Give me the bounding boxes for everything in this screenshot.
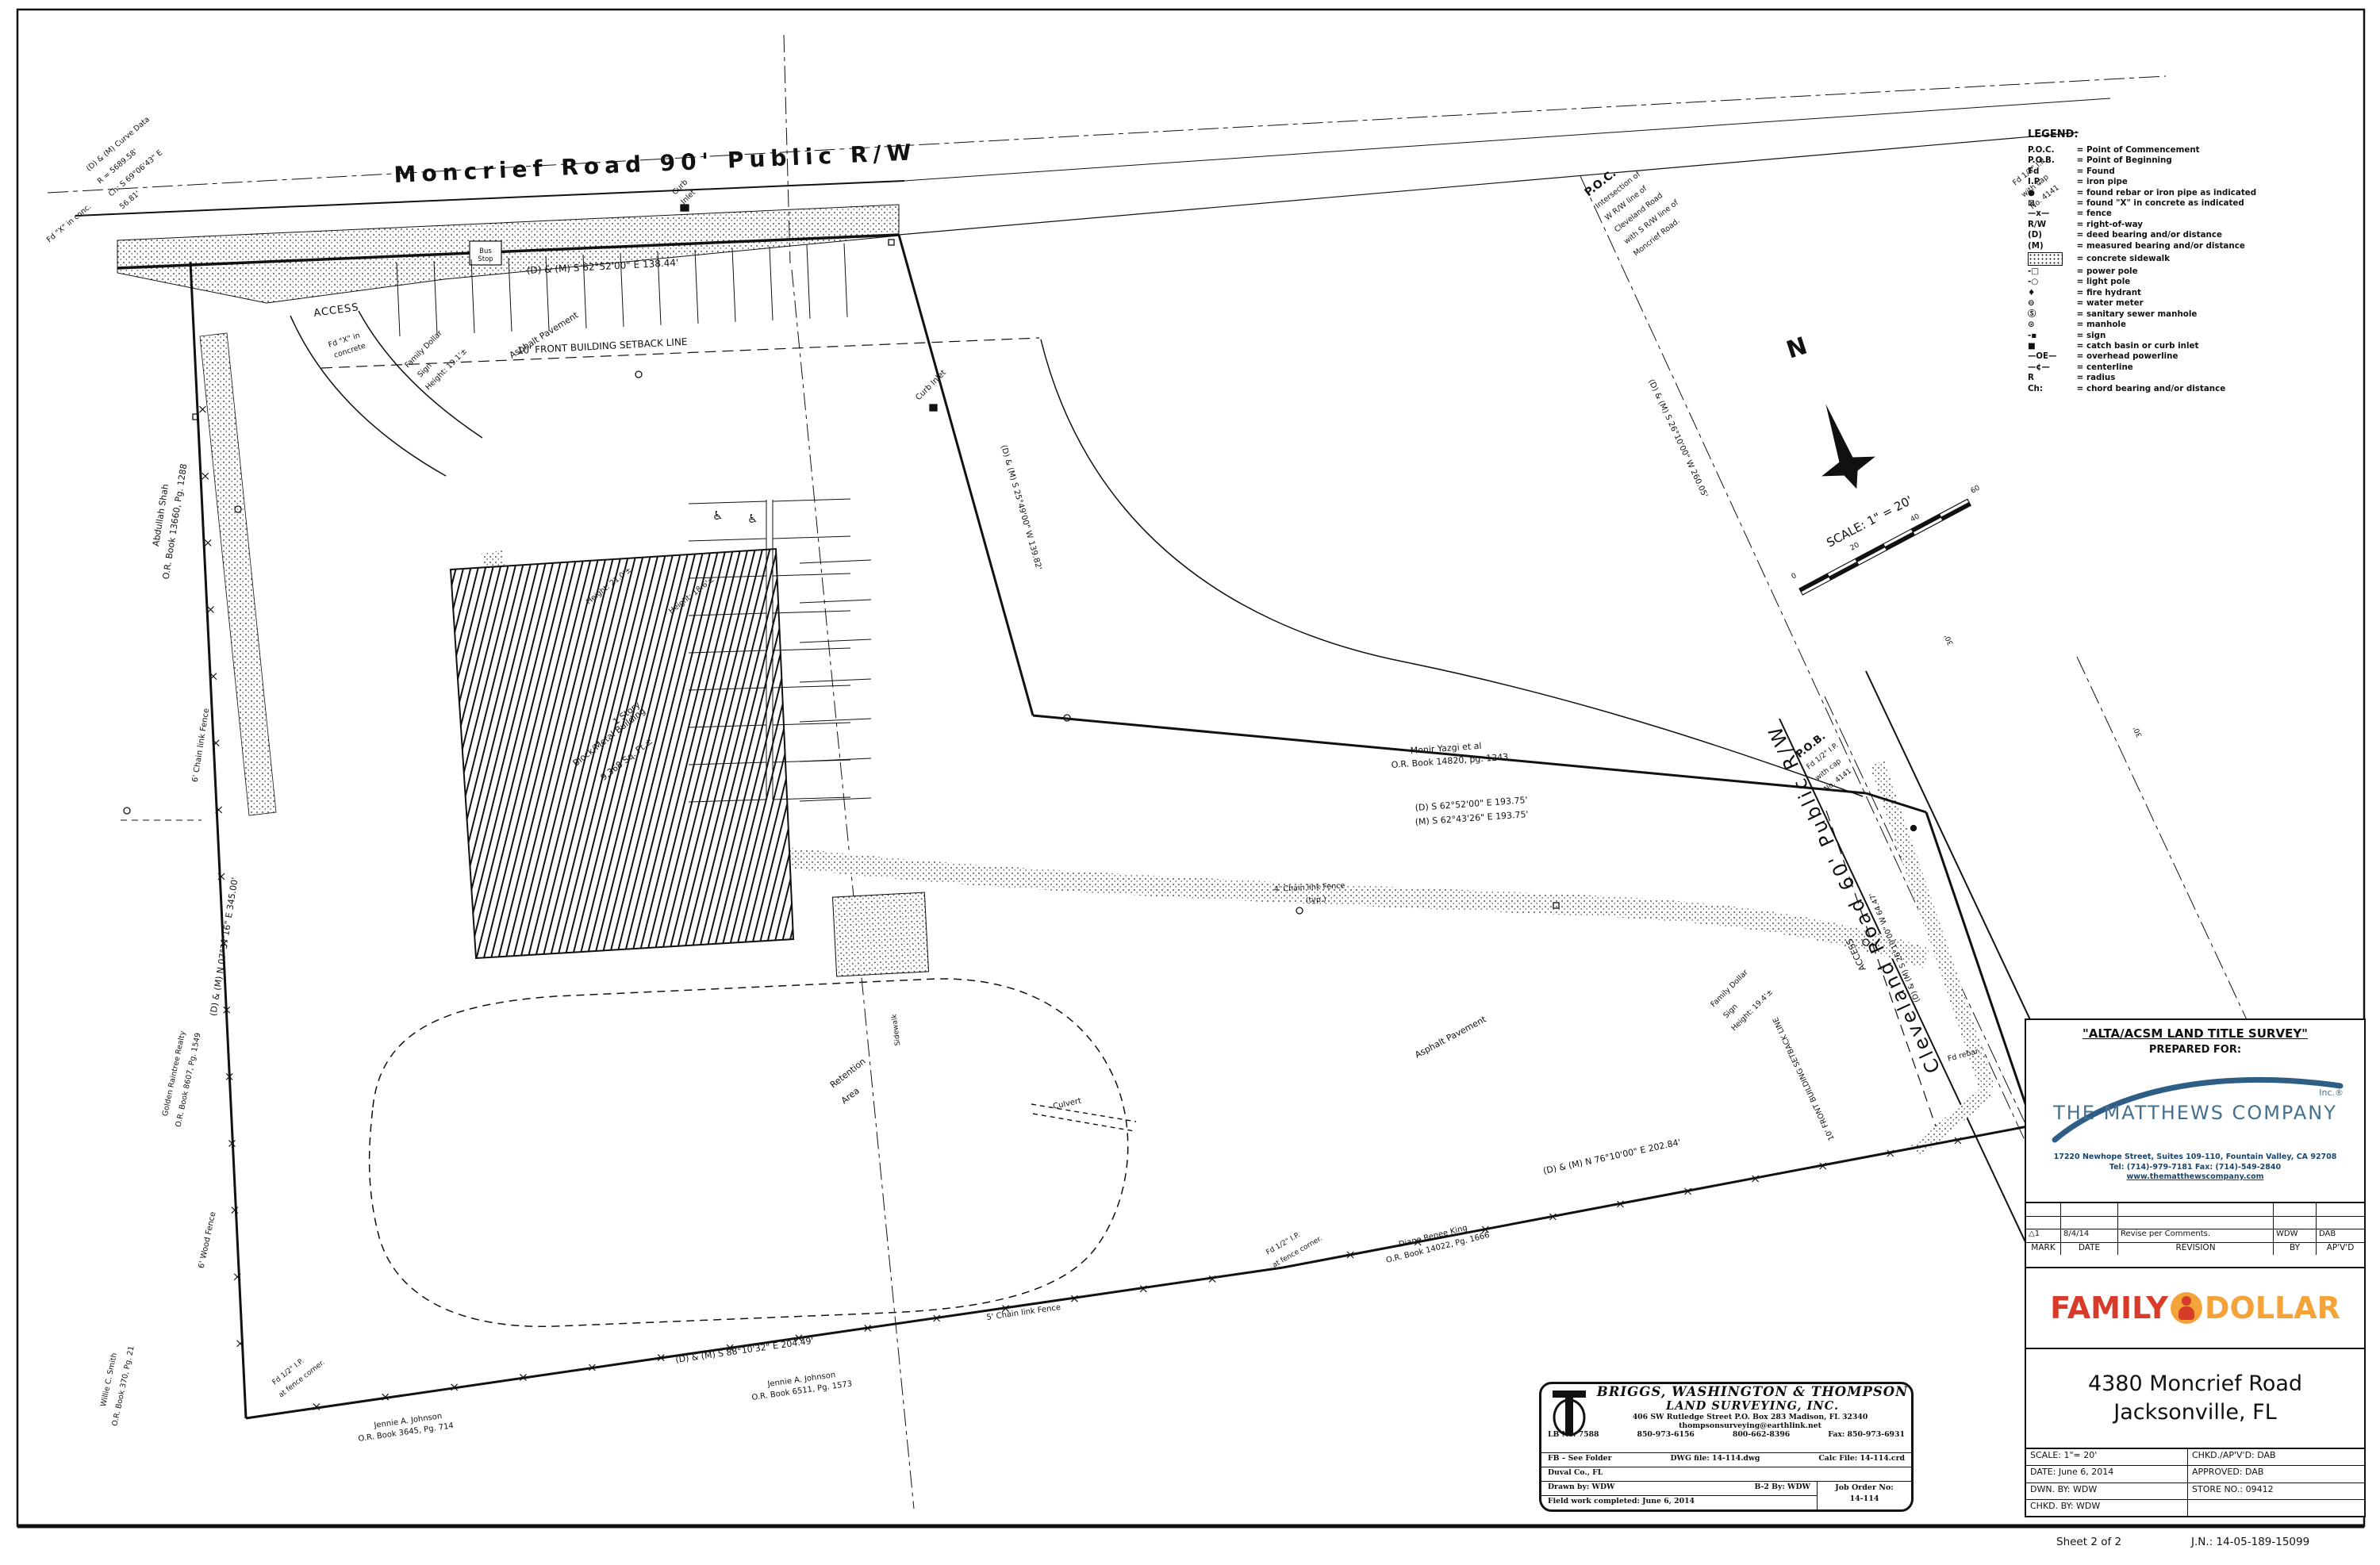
info-scale: SCALE: 1"= 20' [2026, 1449, 2188, 1465]
revision-cell [2317, 1216, 2364, 1229]
legend-description: measured bearing and/or distance [2086, 241, 2364, 251]
legend-items: P.O.C.=Point of CommencementP.O.B.=Point… [2028, 145, 2364, 394]
legend-item: R=radius [2028, 373, 2364, 383]
revision-cell: WDW [2274, 1229, 2317, 1242]
legend-equals: = [2074, 177, 2086, 187]
legend-symbol: ⊙ [2028, 320, 2074, 330]
legend-description: manhole [2086, 320, 2364, 330]
legend-symbol: Fd [2028, 167, 2074, 177]
prepared-for-block: "ALTA/ACSM LAND TITLE SURVEY" PREPARED F… [2025, 1018, 2366, 1203]
matthews-logo: Inc.® THE MATTHEWS COMPANY [2026, 1061, 2364, 1153]
survey-label: ACCESS [313, 301, 359, 320]
legend-item: -□=power pole [2028, 267, 2364, 277]
survey-title: "ALTA/ACSM LAND TITLE SURVEY" [2026, 1026, 2364, 1041]
legend-symbol: —¢— [2028, 362, 2074, 373]
legend-symbol: -▪ [2028, 331, 2074, 341]
legend-symbol: ● [2028, 188, 2074, 198]
legend-symbol: —OE— [2028, 351, 2074, 362]
legend-equals: = [2074, 209, 2086, 219]
legend-equals: = [2074, 373, 2086, 383]
family-dollar-dollar: DOLLAR [2205, 1291, 2340, 1325]
legend-description: concrete sidewalk [2086, 254, 2364, 264]
legend-item: ■=catch basin or curb inlet [2028, 341, 2364, 351]
legend-symbol: (D) [2028, 230, 2074, 240]
survey-label: (D) & (M) S 25°49'00" W 139.82' [999, 444, 1043, 571]
survey-label: 0 [1791, 572, 1798, 581]
site-address-line1: 4380 Moncrief Road [2088, 1370, 2302, 1398]
legend-equals: = [2074, 241, 2086, 251]
legend-item: ⊖=water meter [2028, 298, 2364, 309]
survey-label: Sign [1722, 1003, 1739, 1020]
sheet-number: Sheet 2 of 2 [2056, 1536, 2121, 1548]
revision-row [2026, 1203, 2364, 1216]
revision-rows: △18/4/14Revise per Comments.WDWDAB [2026, 1203, 2364, 1242]
revision-cell [2317, 1203, 2364, 1216]
surveyor-dwg: DWG file: 14-114.dwg [1670, 1454, 1760, 1466]
legend-item: ⊙=manhole [2028, 320, 2364, 330]
surveyor-calc: Calc File: 14-114.crd [1818, 1454, 1905, 1466]
revision-cell [2061, 1216, 2118, 1229]
survey-label: (D) & (M) S 26°10'00" W 260.05' [1646, 378, 1709, 500]
legend-symbol: Ch: [2028, 384, 2074, 394]
legend-symbol: R [2028, 373, 2074, 383]
legend-item: ⊠=found "X" in concrete as indicated [2028, 198, 2364, 209]
legend-equals: = [2074, 167, 2086, 177]
legend-equals: = [2074, 320, 2086, 330]
legend-description: Point of Beginning [2086, 155, 2364, 166]
matthews-name: THE MATTHEWS COMPANY [2026, 1102, 2364, 1124]
survey-label: Bus [479, 247, 492, 255]
legend-equals: = [2074, 288, 2086, 298]
info-grid: SCALE: 1"= 20' CHKD./AP'V'D: DAB DATE: J… [2025, 1448, 2366, 1517]
legend-equals: = [2074, 267, 2086, 277]
legend-description: deed bearing and/or distance [2086, 230, 2364, 240]
revision-cell [2026, 1216, 2061, 1229]
legend-item: P.O.C.=Point of Commencement [2028, 145, 2364, 155]
legend-description: fence [2086, 209, 2364, 219]
survey-label: 30' [1944, 633, 1956, 646]
survey-drawing: Moncrief Road 90' Public R/WCurbInletBus… [0, 0, 2380, 1565]
info-store-no: STORE NO.: 09412 [2188, 1483, 2364, 1499]
legend-description: sanitary sewer manhole [2086, 309, 2364, 320]
revision-cell [2118, 1216, 2274, 1229]
survey-label: Culvert [1052, 1097, 1082, 1111]
survey-label: (D) & (M) N 76°10'00" E 202.84' [1542, 1137, 1682, 1176]
survey-label: 60 [1970, 484, 1982, 495]
revision-header-apvd: AP'V'D [2317, 1242, 2364, 1256]
legend-item: Ch:=chord bearing and/or distance [2028, 384, 2364, 394]
legend-description: radius [2086, 373, 2364, 383]
legend-description: Point of Commencement [2086, 145, 2364, 155]
info-date: DATE: June 6, 2014 [2026, 1465, 2188, 1482]
legend-description: water meter [2086, 298, 2364, 309]
survey-label: Curb Inlet [914, 369, 948, 403]
revision-header-by: BY [2274, 1242, 2317, 1256]
legend-item: R/W=right-of-way [2028, 220, 2364, 230]
legend-equals: = [2074, 298, 2086, 309]
info-approved: APPROVED: DAB [2188, 1465, 2364, 1482]
surveyor-email: thompsonsurveying@earthlink.net [1589, 1421, 1911, 1430]
legend-symbol: ♦ [2028, 288, 2074, 298]
legend-item: (D)=deed bearing and/or distance [2028, 230, 2364, 240]
surveyor-address: 406 SW Rutledge Street P.O. Box 283 Madi… [1589, 1413, 1911, 1421]
survey-label: Stop [478, 255, 493, 263]
revision-cell: DAB [2317, 1229, 2364, 1242]
legend-symbol: P.O.B. [2028, 155, 2074, 166]
survey-label: Area [839, 1086, 862, 1107]
prepared-for-label: PREPARED FOR: [2026, 1044, 2364, 1056]
revision-header-revision: REVISION [2118, 1242, 2274, 1256]
legend-equals: = [2074, 351, 2086, 362]
legend-symbol: —x— [2028, 209, 2074, 219]
legend-equals: = [2074, 277, 2086, 287]
legend-item: Fd=Found [2028, 167, 2364, 177]
legend-equals: = [2074, 188, 2086, 198]
north-arrow [1798, 394, 1883, 499]
survey-label: Family Dollar [1709, 969, 1749, 1009]
legend-equals: = [2074, 254, 2086, 264]
survey-label: Retention [828, 1056, 868, 1090]
revision-cell [2061, 1203, 2118, 1216]
surveyor-fb: FB – See Folder [1548, 1454, 1612, 1466]
legend-item: -▪=sign [2028, 331, 2364, 341]
survey-label: (D) & (M) S 88°10'32" E 204.49' [675, 1336, 815, 1365]
survey-sheet: Moncrief Road 90' Public R/WCurbInletBus… [0, 0, 2380, 1565]
legend-description: fire hydrant [2086, 288, 2364, 298]
survey-label: N [1783, 332, 1811, 365]
revision-cell [2274, 1203, 2317, 1216]
info-chkd-apvd: CHKD./AP'V'D: DAB [2188, 1449, 2364, 1465]
legend-equals: = [2074, 309, 2086, 320]
legend-symbol: R/W [2028, 220, 2074, 230]
revision-row [2026, 1216, 2364, 1229]
revision-cell: △1 [2026, 1229, 2061, 1242]
legend-description: found "X" in concrete as indicated [2086, 198, 2364, 209]
survey-label: Asphalt Pavement [1413, 1014, 1488, 1061]
revision-row: △18/4/14Revise per Comments.WDWDAB [2026, 1229, 2364, 1242]
surveyor-b2-by: B-2 By: WDW [1755, 1483, 1810, 1494]
legend-item: P.O.B.=Point of Beginning [2028, 155, 2364, 166]
legend-item: =concrete sidewalk [2028, 251, 2364, 267]
site-interior [121, 311, 1936, 1326]
family-dollar-family: FAMILY [2050, 1291, 2168, 1325]
legend-item: -○=light pole [2028, 277, 2364, 287]
legend-item: Ⓢ=sanitary sewer manhole [2028, 309, 2364, 320]
legend-item: (M)=measured bearing and/or distance [2028, 241, 2364, 251]
legend-symbol: (M) [2028, 241, 2074, 251]
revision-header-date: DATE [2061, 1242, 2118, 1256]
revision-cell [2274, 1216, 2317, 1229]
revision-cell [2118, 1203, 2274, 1216]
revision-block: △18/4/14Revise per Comments.WDWDAB MARK … [2025, 1202, 2366, 1268]
legend-symbol: I.P. [2028, 177, 2074, 187]
legend-symbol: ⊖ [2028, 298, 2074, 309]
legend-description: right-of-way [2086, 220, 2364, 230]
survey-label: 30' [2132, 725, 2144, 738]
site-address-block: 4380 Moncrief Road Jacksonville, FL [2025, 1348, 2366, 1449]
legend-item: —OE—=overhead powerline [2028, 351, 2364, 362]
utility-symbols [124, 205, 1917, 946]
surveyor-county: Duval Co., FL [1548, 1468, 1603, 1480]
survey-label: 20 [1849, 541, 1861, 552]
surveyor-job-label: Job Order No: [1818, 1483, 1911, 1494]
site-address-line2: Jacksonville, FL [2113, 1398, 2277, 1427]
legend: LEGEND: P.O.C.=Point of CommencementP.O.… [2028, 128, 2364, 394]
legend-equals: = [2074, 331, 2086, 341]
revision-cell: 8/4/14 [2061, 1229, 2118, 1242]
surveyor-logo-icon [1548, 1389, 1591, 1440]
survey-label: Family Dollar [403, 329, 443, 370]
legend-description: sign [2086, 331, 2364, 341]
legend-equals: = [2074, 384, 2086, 394]
survey-label: 10' FRONT BUILDING SETBACK LINE [1772, 1016, 1837, 1142]
surveyor-phone1: 850-973-6156 [1637, 1430, 1694, 1439]
surveyor-fieldwork: Field work completed: June 6, 2014 [1548, 1497, 1695, 1509]
legend-item: —¢—=centerline [2028, 362, 2364, 373]
legend-symbol: ■ [2028, 341, 2074, 351]
survey-label: ♿ [712, 508, 723, 523]
surveyor-job-no: 14-114 [1818, 1494, 1911, 1505]
info-chkd-by: CHKD. BY: WDW [2026, 1499, 2188, 1516]
generated-linework [199, 244, 1961, 1410]
survey-label: Fd "X" in conc. [45, 202, 94, 244]
legend-description: chord bearing and/or distance [2086, 384, 2364, 394]
legend-sidewalk-swatch [2028, 252, 2063, 266]
legend-symbol: -□ [2028, 267, 2074, 277]
surveyor-drawn-by: Drawn by: WDW [1548, 1483, 1615, 1494]
matthews-inc: Inc.® [2319, 1087, 2344, 1098]
legend-item: I.P.=iron pipe [2028, 177, 2364, 187]
legend-description: iron pipe [2086, 177, 2364, 187]
legend-item: —x—=fence [2028, 209, 2364, 219]
matthews-website: www.thematthewscompany.com [2026, 1172, 2364, 1183]
surveyor-block: BRIGGS, WASHINGTON & THOMPSON LAND SURVE… [1539, 1382, 1914, 1512]
survey-label: Sidewalk [891, 1013, 903, 1046]
revision-header: MARK DATE REVISION BY AP'V'D [2026, 1242, 2364, 1256]
legend-equals: = [2074, 198, 2086, 209]
revision-cell [2026, 1203, 2061, 1216]
survey-label: 6' Wood Fence [198, 1211, 218, 1269]
legend-title: LEGEND: [2028, 128, 2364, 140]
legend-description: catch basin or curb inlet [2086, 341, 2364, 351]
survey-label: (D) & (M) N 07°37'16" E 345.00' [208, 876, 240, 1017]
info-dwn-by: DWN. BY: WDW [2026, 1483, 2188, 1499]
family-dollar-logo: FAMILY DOLLAR [2025, 1267, 2366, 1349]
survey-label: 40 [1910, 512, 1921, 524]
legend-symbol: ⊠ [2028, 198, 2074, 209]
legend-description: light pole [2086, 277, 2364, 287]
surveyor-phone2: 800-662-8396 [1733, 1430, 1790, 1439]
survey-label: (typ.) [1306, 896, 1326, 905]
legend-description: centerline [2086, 362, 2364, 373]
job-number: J.N.: 14-05-189-15099 [2191, 1536, 2309, 1548]
legend-symbol: P.O.C. [2028, 145, 2074, 155]
legend-description: power pole [2086, 267, 2364, 277]
legend-item: ♦=fire hydrant [2028, 288, 2364, 298]
survey-label: Moncrief Road 90' Public R/W [393, 139, 917, 188]
legend-description: found rebar or iron pipe as indicated [2086, 188, 2364, 198]
surveyor-name2: LAND SURVEYING, INC. [1594, 1399, 1911, 1413]
survey-label: 56.81' [118, 190, 142, 212]
legend-description: overhead powerline [2086, 351, 2364, 362]
legend-equals: = [2074, 145, 2086, 155]
legend-description: Found [2086, 167, 2364, 177]
legend-equals: = [2074, 341, 2086, 351]
legend-symbol: -○ [2028, 277, 2074, 287]
survey-label: ♿ [747, 512, 758, 526]
family-dollar-coin-icon [2171, 1292, 2202, 1324]
info-blank [2188, 1499, 2364, 1516]
legend-symbol: Ⓢ [2028, 309, 2074, 320]
survey-label: 6' Chain link Fence [191, 708, 212, 783]
matthews-address: 17220 Newhope Street, Suites 109-110, Fo… [2026, 1153, 2364, 1163]
legend-equals: = [2074, 362, 2086, 373]
revision-header-mark: MARK [2026, 1242, 2061, 1256]
legend-equals: = [2074, 155, 2086, 166]
legend-equals: = [2074, 230, 2086, 240]
surveyor-name: BRIGGS, WASHINGTON & THOMPSON [1594, 1384, 1911, 1399]
surveyor-fax: Fax: 850-973-6931 [1828, 1430, 1905, 1439]
legend-item: ●=found rebar or iron pipe as indicated [2028, 188, 2364, 198]
survey-label: O.R. Book 13660, Pg. 1288 [161, 463, 190, 581]
matthews-phone: Tel: (714)-979-7181 Fax: (714)-549-2840 [2026, 1163, 2364, 1173]
revision-cell: Revise per Comments. [2118, 1229, 2274, 1242]
legend-equals: = [2074, 220, 2086, 230]
